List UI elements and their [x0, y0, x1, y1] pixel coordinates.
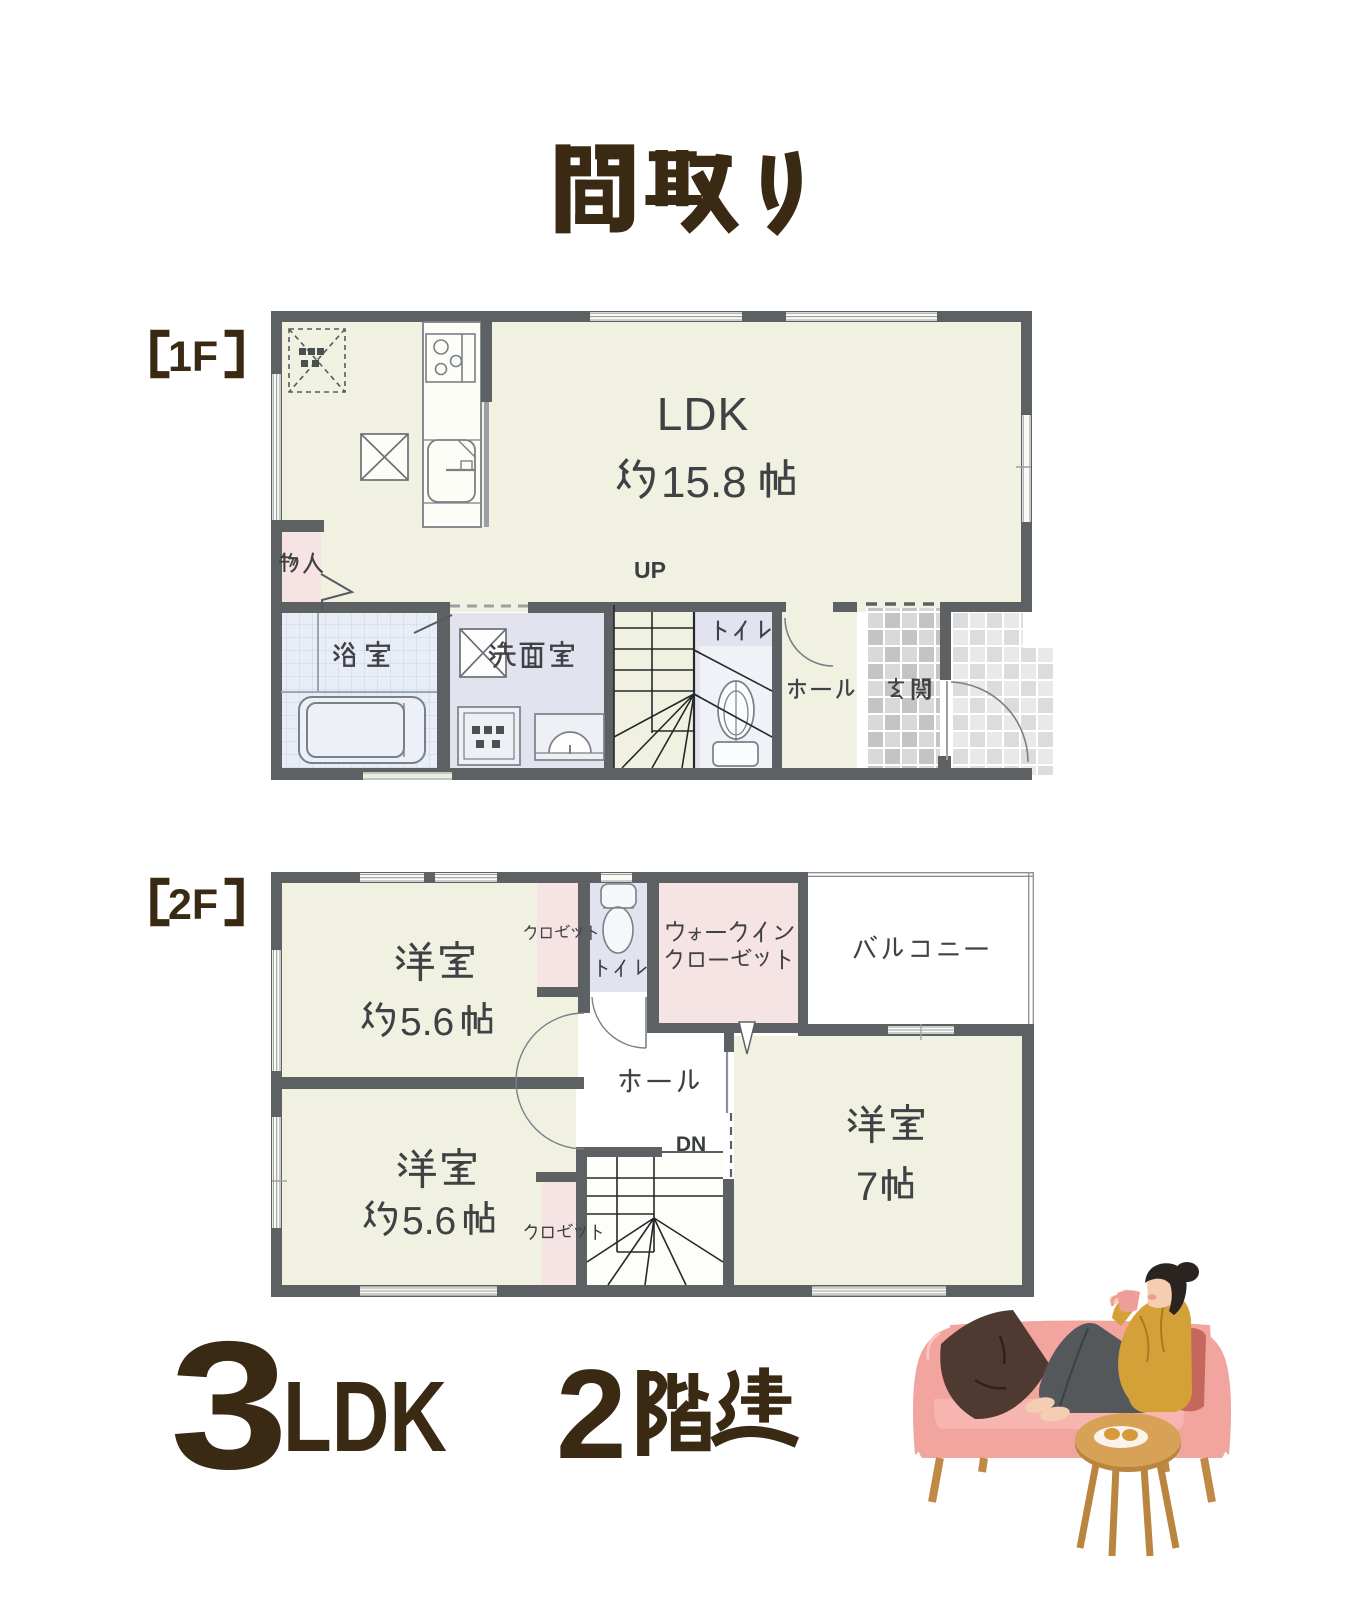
svg-text:5.6: 5.6: [402, 1200, 456, 1243]
svg-text:7: 7: [856, 1165, 878, 1209]
svg-text:LDK: LDK: [657, 388, 749, 440]
svg-text:LDK: LDK: [283, 1361, 447, 1473]
svg-text:DN: DN: [676, 1133, 706, 1156]
svg-text:3: 3: [170, 1304, 288, 1507]
svg-text:UP: UP: [634, 557, 666, 583]
svg-text:15.8: 15.8: [661, 458, 747, 507]
svg-text:2F: 2F: [168, 881, 218, 929]
svg-text:2: 2: [556, 1343, 627, 1485]
svg-text:5.6: 5.6: [400, 1001, 454, 1044]
svg-text:1F: 1F: [168, 333, 218, 381]
